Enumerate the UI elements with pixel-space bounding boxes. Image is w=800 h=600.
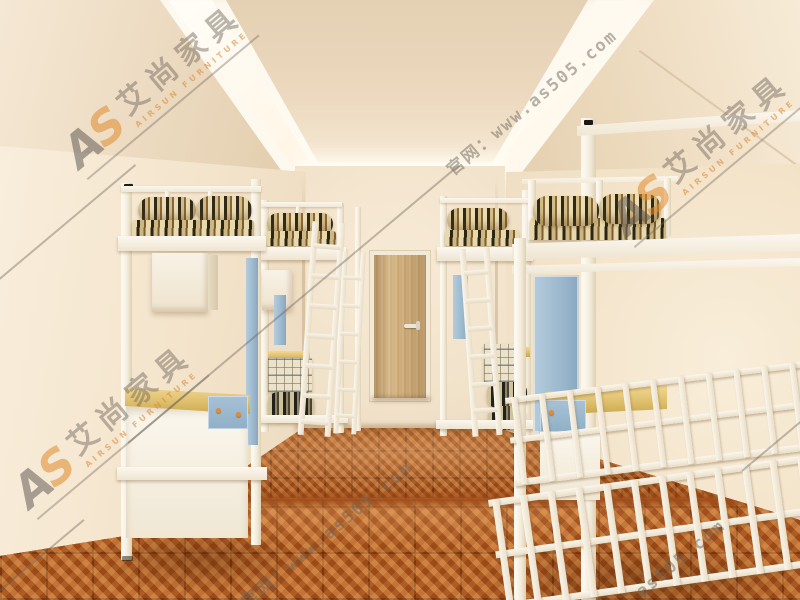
bed4-guardrail-top	[440, 198, 531, 203]
bed1-guardrail-top	[121, 186, 261, 192]
bed1-drawers	[208, 396, 248, 429]
bed2-wardrobe-blue	[274, 295, 286, 345]
door-shadow	[372, 397, 430, 401]
bed4-bedding-roll	[447, 208, 509, 232]
bed1-cabinet-side	[208, 255, 218, 310]
bed1-hanging-cabinet	[152, 253, 208, 312]
bed1-lower-rail	[117, 467, 267, 480]
bed5-bedding-roll-2	[599, 194, 661, 224]
drawer-knob	[216, 408, 221, 413]
bed4-mattress	[445, 230, 519, 246]
bed5-post-cap	[584, 120, 593, 125]
door-handle-base	[416, 321, 420, 330]
bed2-guardrail-top	[261, 202, 342, 207]
bed1-deck-beam	[118, 236, 266, 251]
drawer-knob	[236, 412, 241, 417]
bed1-foot	[122, 556, 133, 561]
bed5-bedding-roll-1	[533, 196, 599, 226]
dorm-room-render: AS 艾尚家具 AIRSUN FURNITURE AS 艾尚家具 AIRSUN …	[0, 0, 800, 600]
